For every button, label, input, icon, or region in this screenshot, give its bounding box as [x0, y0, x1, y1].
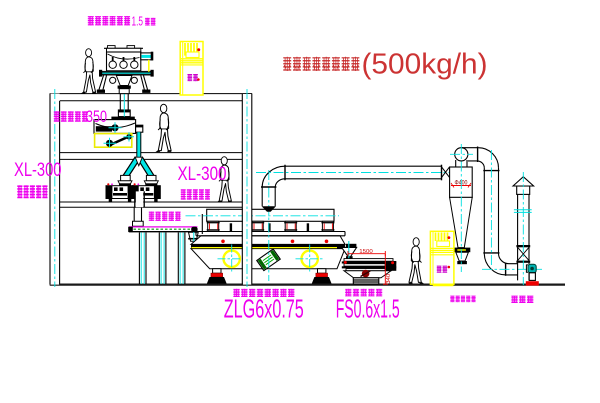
svg-text:1.5: 1.5 — [132, 15, 144, 29]
svg-text:XL-300: XL-300 — [14, 160, 62, 181]
svg-text:340: 340 — [386, 274, 392, 284]
svg-text:350: 350 — [86, 107, 107, 126]
svg-text:FS0.6x1.5: FS0.6x1.5 — [336, 294, 400, 324]
svg-text:1500: 1500 — [359, 249, 373, 255]
svg-text:(500kg/h): (500kg/h) — [362, 49, 488, 81]
svg-text:ZLG6x0.75: ZLG6x0.75 — [224, 294, 304, 324]
svg-text:XL-300: XL-300 — [178, 164, 227, 185]
